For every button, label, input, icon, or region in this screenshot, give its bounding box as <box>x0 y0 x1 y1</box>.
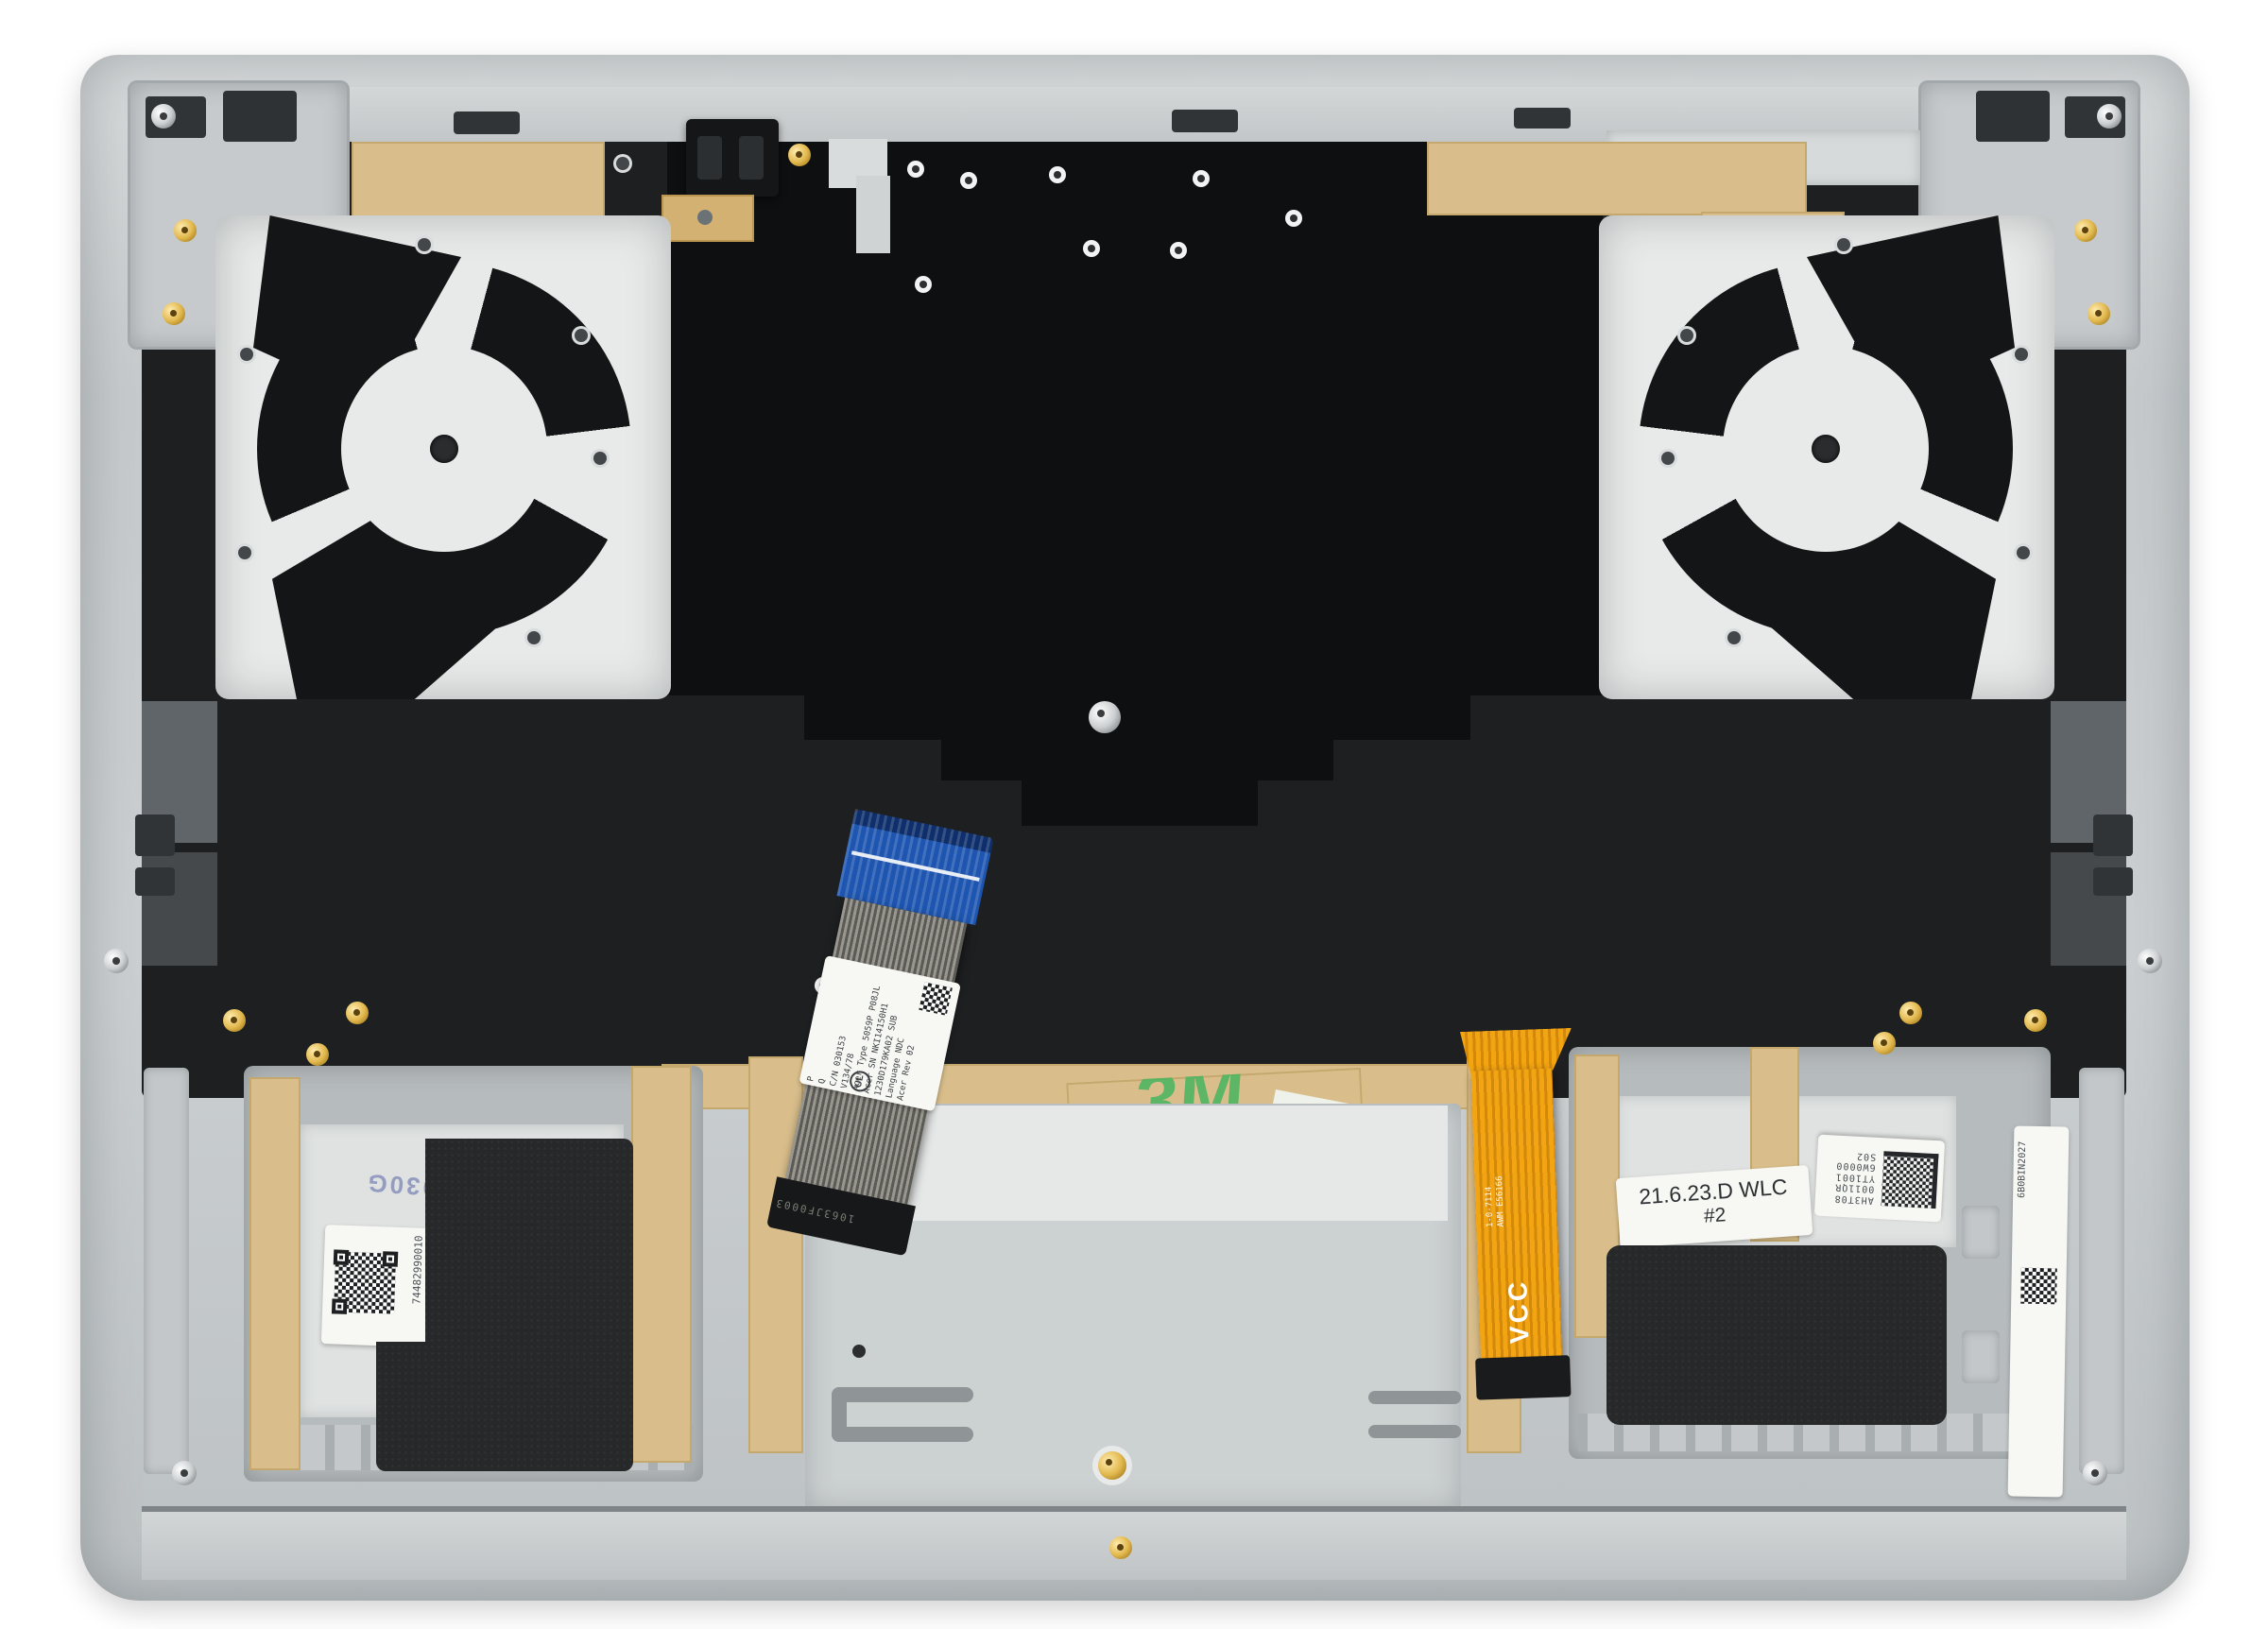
kapton-strip <box>249 1077 301 1470</box>
screw-hole <box>527 631 541 644</box>
datamatrix-code <box>1881 1151 1938 1209</box>
wall-slot <box>2093 814 2133 856</box>
rail-slot <box>1172 110 1238 132</box>
kapton-strip <box>631 1066 692 1463</box>
alignment-hole <box>852 1345 866 1358</box>
cfg-line: 6W0000 <box>1835 1159 1876 1173</box>
screw-hole <box>575 329 588 342</box>
mylar-hole <box>960 172 977 189</box>
brass-screw <box>2074 219 2097 242</box>
screw-hole <box>2017 546 2030 559</box>
screw-hole <box>697 210 713 225</box>
brass-screw <box>788 144 811 166</box>
screw <box>2138 949 2162 973</box>
brass-screw <box>1109 1536 1132 1559</box>
screw <box>104 949 129 973</box>
brass-standoff <box>1098 1451 1126 1480</box>
screw-hole <box>1661 452 1675 465</box>
screw-hole <box>418 238 431 251</box>
screw-hole <box>2015 348 2028 361</box>
fan-plate-left <box>215 215 671 699</box>
brass-screw <box>1873 1032 1896 1055</box>
screw-hole <box>616 157 629 170</box>
mylar-hole <box>1193 170 1210 187</box>
cfg-line: 0011QR <box>1834 1181 1875 1194</box>
brass-screw <box>2024 1009 2047 1032</box>
wall-slot <box>2093 867 2133 896</box>
rail-slot <box>454 111 520 134</box>
qr-code <box>334 1251 396 1313</box>
mylar-hole <box>915 276 932 293</box>
brass-screw <box>223 1009 246 1032</box>
u-slot <box>1368 1391 1461 1404</box>
fan-hub-hole <box>430 435 458 463</box>
kapton-tape-top-left <box>352 142 605 219</box>
qr-serial-sticker: 74482990010 <box>321 1225 431 1347</box>
orange-vcc-text: VCC <box>1501 1229 1535 1344</box>
frame-bump <box>1962 1206 2000 1259</box>
u-slot <box>1368 1425 1461 1438</box>
ffc-orange-end <box>1475 1355 1571 1399</box>
screw <box>2097 104 2122 129</box>
side-serial-number: 6B0BIN2027 <box>2017 1141 2028 1198</box>
mylar-hole <box>1285 210 1302 227</box>
mini-bracket <box>856 176 890 253</box>
screw <box>151 104 176 129</box>
wlc-date-sticker: 21.6.23.D WLC #2 <box>1616 1165 1813 1248</box>
mylar-hole <box>1083 240 1100 257</box>
ffc-orange-body: 1-0-7114 AWM E56166 VCC <box>1470 1069 1562 1361</box>
rail-slot <box>1514 108 1571 129</box>
center-screw <box>1089 701 1121 733</box>
kapton-tape-top-right <box>1427 142 1807 215</box>
brass-screw <box>306 1043 329 1066</box>
side-serial-sticker: 6B0BIN2027 <box>2008 1126 2070 1498</box>
screw-hole <box>240 348 253 361</box>
orange-ffc-assembly: 1-0-7114 AWM E56166 VCC <box>1460 1028 1587 1410</box>
mylar-hole <box>1049 166 1066 183</box>
bottom-lip <box>142 1512 2126 1580</box>
frame-bump <box>1962 1330 2000 1383</box>
screw-hole <box>1837 238 1850 251</box>
serial-number: 74482990010 <box>410 1235 425 1304</box>
u-slot <box>832 1387 847 1442</box>
connector-port <box>739 136 764 180</box>
brass-screw <box>2088 302 2110 325</box>
cfg-line: AH3T08 <box>1833 1192 1874 1206</box>
u-slot <box>832 1427 973 1442</box>
speaker-module-right: 21.6.23.D WLC #2 AH3T08 0011QR YT1001 6W… <box>1569 1047 2051 1459</box>
qr-code <box>2020 1268 2057 1305</box>
wall-slot <box>135 867 175 896</box>
wall-slot <box>135 814 175 856</box>
hinge-slot <box>223 91 297 142</box>
ffc-orange-flare <box>1460 1028 1572 1073</box>
screw-hole <box>1680 329 1693 342</box>
keyboard-part-label: P Q C/N 030153 V134/78 Acer Type 5059P P… <box>799 955 961 1111</box>
connector-port <box>697 136 722 180</box>
brass-screw <box>163 302 185 325</box>
gold-shield-pad <box>661 195 754 242</box>
mylar-hole <box>907 161 924 178</box>
fan-plate-right <box>1599 215 2054 699</box>
frame-pillar-left <box>144 1068 189 1474</box>
io-rubber-connector-block <box>686 119 779 197</box>
u-slot <box>832 1387 973 1402</box>
fan-hub-hole <box>1812 435 1840 463</box>
qr-config-sticker: AH3T08 0011QR YT1001 6W0000 S02 <box>1814 1135 1945 1223</box>
hinge-slot <box>1976 91 2050 142</box>
mylar-hole <box>1170 242 1187 259</box>
screw-hole <box>593 452 607 465</box>
speaker-foam-pad <box>1606 1245 1947 1425</box>
speaker-module-left: 41Y030G 74482990010 <box>244 1066 703 1482</box>
brass-screw <box>174 219 197 242</box>
brass-screw <box>346 1002 369 1024</box>
screw <box>172 1461 197 1485</box>
frame-pillar-right <box>2079 1068 2124 1474</box>
screw <box>2083 1461 2107 1485</box>
cfg-line: YT1001 <box>1835 1171 1876 1184</box>
ffc-marking: 1063JF0003 <box>811 1204 856 1225</box>
brass-screw <box>1899 1002 1922 1024</box>
screw-hole <box>1727 631 1741 644</box>
screw-hole <box>238 546 251 559</box>
